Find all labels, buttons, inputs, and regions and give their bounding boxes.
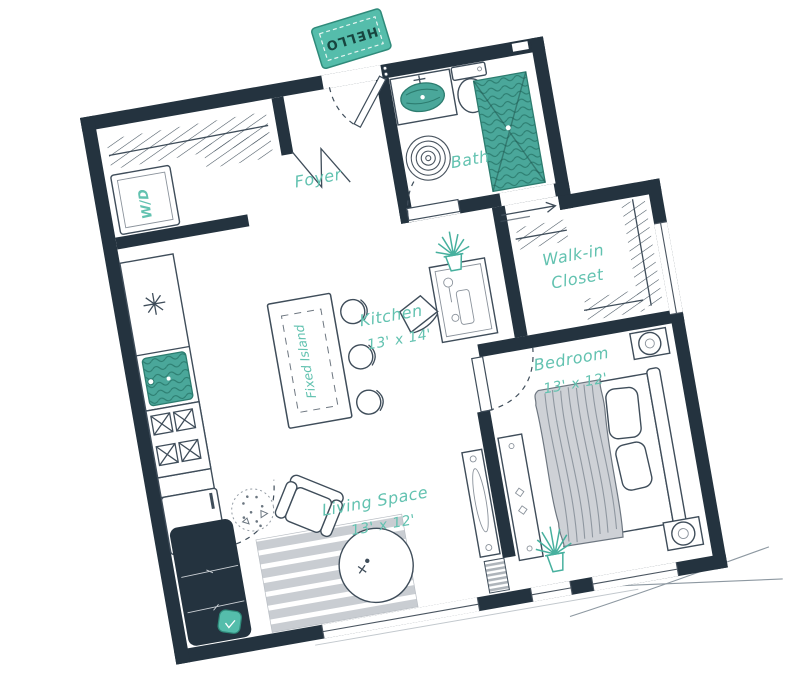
washer-dryer: W/D [110, 165, 180, 235]
floor-plan-drawing: HELLO W/D [0, 0, 800, 675]
door-hinge [384, 72, 388, 76]
kitchen-sink [142, 351, 194, 406]
sofa-pillow [217, 609, 242, 634]
floor-plan-page: HELLO W/D [0, 0, 800, 675]
faucet-icon [147, 378, 154, 385]
nightstand [663, 517, 703, 551]
vanity-sink [390, 69, 457, 125]
door-hinge [383, 66, 387, 70]
nightstand [630, 328, 670, 360]
stove [146, 402, 211, 478]
pillow [605, 387, 642, 440]
desk [429, 258, 497, 343]
